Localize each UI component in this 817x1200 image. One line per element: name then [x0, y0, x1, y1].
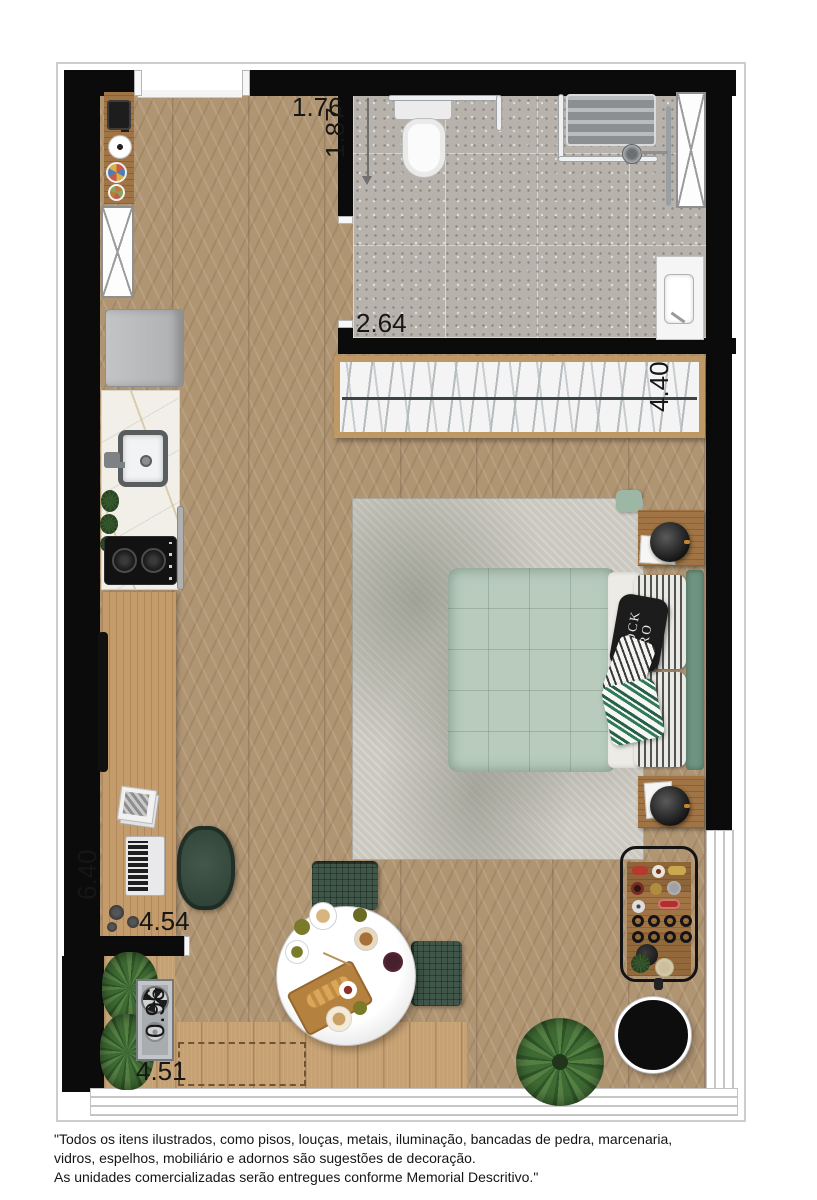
- grab-bar-side: [496, 95, 502, 131]
- shower-bench-bar-left: [558, 94, 564, 162]
- bottle-icon: [658, 899, 680, 909]
- desk-knob-icon: [127, 916, 139, 928]
- glass-ring-icon: [664, 931, 676, 943]
- floor-plan: ROCK RO: [0, 0, 817, 1200]
- side-table-round: [615, 997, 691, 1073]
- shower-bench-bar-bottom: [558, 156, 658, 162]
- hand-shower-hose: [640, 151, 668, 154]
- bed-mattress: [448, 568, 616, 772]
- wall-bathroom-bottom: [338, 338, 736, 354]
- bathroom-shaft-x-panel: [676, 92, 706, 208]
- entry-door-jamb-right: [242, 70, 250, 96]
- desk-chair: [177, 826, 235, 910]
- dim-label-living-width: 4.54: [139, 906, 190, 936]
- disclaimer-line1: "Todos os itens ilustrados, como pisos, …: [54, 1130, 768, 1149]
- glass-icon: [650, 883, 662, 895]
- glass-ring-icon: [648, 915, 660, 927]
- shower-rail: [666, 106, 671, 206]
- bottle-icon: [632, 866, 648, 875]
- window-band-bottom: [90, 1088, 738, 1116]
- tv: [98, 632, 108, 772]
- bowl-icon: [294, 919, 310, 935]
- dim-label-bath-width: 2.64: [356, 308, 407, 338]
- glass-ring-icon: [680, 931, 692, 943]
- glass-ring-icon: [664, 915, 676, 927]
- furniture-projection-dashed: [178, 1042, 306, 1086]
- bowl-icon: [353, 908, 367, 922]
- wall-left-lower: [62, 956, 104, 1092]
- shower-bench: [566, 94, 656, 146]
- hand-shower-icon: [622, 144, 642, 164]
- dim-line-bath-depth: [367, 98, 369, 178]
- plate-icon: [108, 135, 132, 159]
- desk-knob-icon: [109, 905, 124, 920]
- burner-icon: [141, 548, 166, 573]
- herb-pot: [101, 490, 119, 512]
- fridge: [105, 309, 184, 387]
- bath-door-jamb-top: [338, 216, 353, 224]
- wall-right: [706, 70, 732, 830]
- bath-door-jamb-bottom: [338, 320, 353, 328]
- cup-icon: [285, 940, 309, 964]
- wall-left: [64, 70, 100, 938]
- lamp-switch-icon: [684, 540, 690, 544]
- grab-bar-top: [388, 95, 502, 101]
- magazine-photo: [123, 791, 150, 816]
- laptop-keyboard: [128, 841, 148, 891]
- dim-arrow-icon: [362, 176, 372, 185]
- desk-knob-icon: [107, 922, 117, 932]
- coffee-machine-icon: [107, 100, 131, 130]
- oven-handle: [177, 506, 184, 590]
- plate-icon: [309, 902, 337, 930]
- entry-threshold: [138, 90, 242, 98]
- glass-ring-icon: [632, 915, 644, 927]
- entry-door-jamb-left: [134, 70, 142, 96]
- glass-ring-icon: [680, 915, 692, 927]
- cooktop-knobs: [169, 542, 172, 580]
- kitchen-shaft-x-panel: [101, 206, 134, 298]
- cart-caster: [654, 978, 663, 990]
- glass-icon: [667, 881, 681, 895]
- floor-plant-center: [552, 1054, 568, 1070]
- herb-pot: [100, 514, 118, 534]
- dim-label-terrace-width: 4.51: [136, 1056, 187, 1086]
- sink-drain-icon: [140, 455, 152, 467]
- bed-headboard: [686, 570, 704, 770]
- plate-icon: [354, 927, 378, 951]
- kitchen-faucet-icon: [104, 452, 120, 468]
- decor-plate-icon: [106, 162, 127, 183]
- toilet-bowl: [402, 118, 446, 178]
- disclaimer-line3: As unidades comercializadas serão entreg…: [54, 1168, 768, 1187]
- plate-icon: [326, 1006, 352, 1032]
- glass-ring-icon: [632, 931, 644, 943]
- glass-ring-icon: [648, 931, 660, 943]
- bed-cushion: [616, 490, 642, 512]
- dining-chair-right: [411, 941, 462, 1006]
- dim-label-bath-depth: 1.87: [320, 107, 350, 158]
- window-band-right: [706, 830, 734, 1092]
- dim-label-terrace-depth: 0.96: [140, 987, 170, 1038]
- lamp-switch-icon: [684, 804, 690, 808]
- bowl-icon: [383, 952, 403, 972]
- burner-icon: [112, 548, 137, 573]
- bowl-icon: [353, 1001, 367, 1015]
- plate-icon: [632, 900, 645, 913]
- bottle-icon: [668, 866, 686, 875]
- stub-wall-cap: [184, 936, 190, 956]
- dim-label-closet-width: 4.40: [644, 361, 674, 412]
- disclaimer: "Todos os itens ilustrados, como pisos, …: [54, 1130, 768, 1187]
- jar-icon: [655, 958, 674, 977]
- dim-label-unit-depth: 6.40: [72, 849, 102, 900]
- decor-plate-small-icon: [108, 184, 125, 201]
- cart-plant-icon: [631, 954, 650, 973]
- plate-icon: [652, 865, 665, 878]
- cup-icon: [339, 981, 357, 999]
- disclaimer-line2: vidros, espelhos, mobiliário e adornos s…: [54, 1149, 768, 1168]
- glass-icon: [631, 882, 644, 895]
